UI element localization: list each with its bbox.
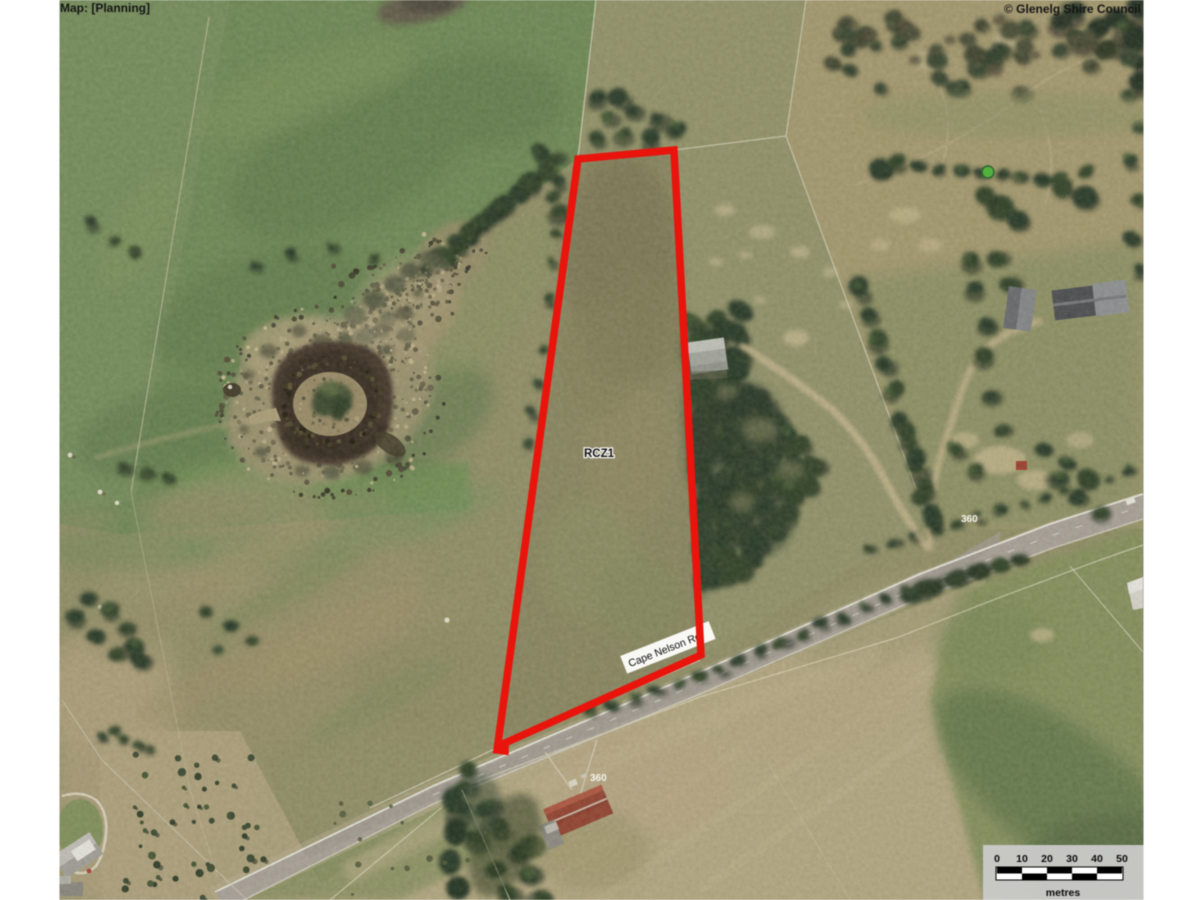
svg-text:50: 50 — [1116, 853, 1128, 865]
svg-text:© Glenelg Shire Council: © Glenelg Shire Council — [1004, 2, 1141, 16]
svg-text:360: 360 — [961, 514, 978, 525]
svg-text:40: 40 — [1091, 853, 1103, 865]
svg-text:0: 0 — [994, 853, 1000, 865]
svg-text:360: 360 — [590, 773, 607, 784]
svg-text:RCZ1: RCZ1 — [584, 448, 615, 460]
svg-text:30: 30 — [1066, 853, 1078, 865]
svg-text:Map: [Planning]: Map: [Planning] — [60, 1, 150, 15]
svg-text:20: 20 — [1041, 853, 1053, 865]
svg-text:metres: metres — [1046, 887, 1081, 899]
svg-text:10: 10 — [1016, 853, 1028, 865]
